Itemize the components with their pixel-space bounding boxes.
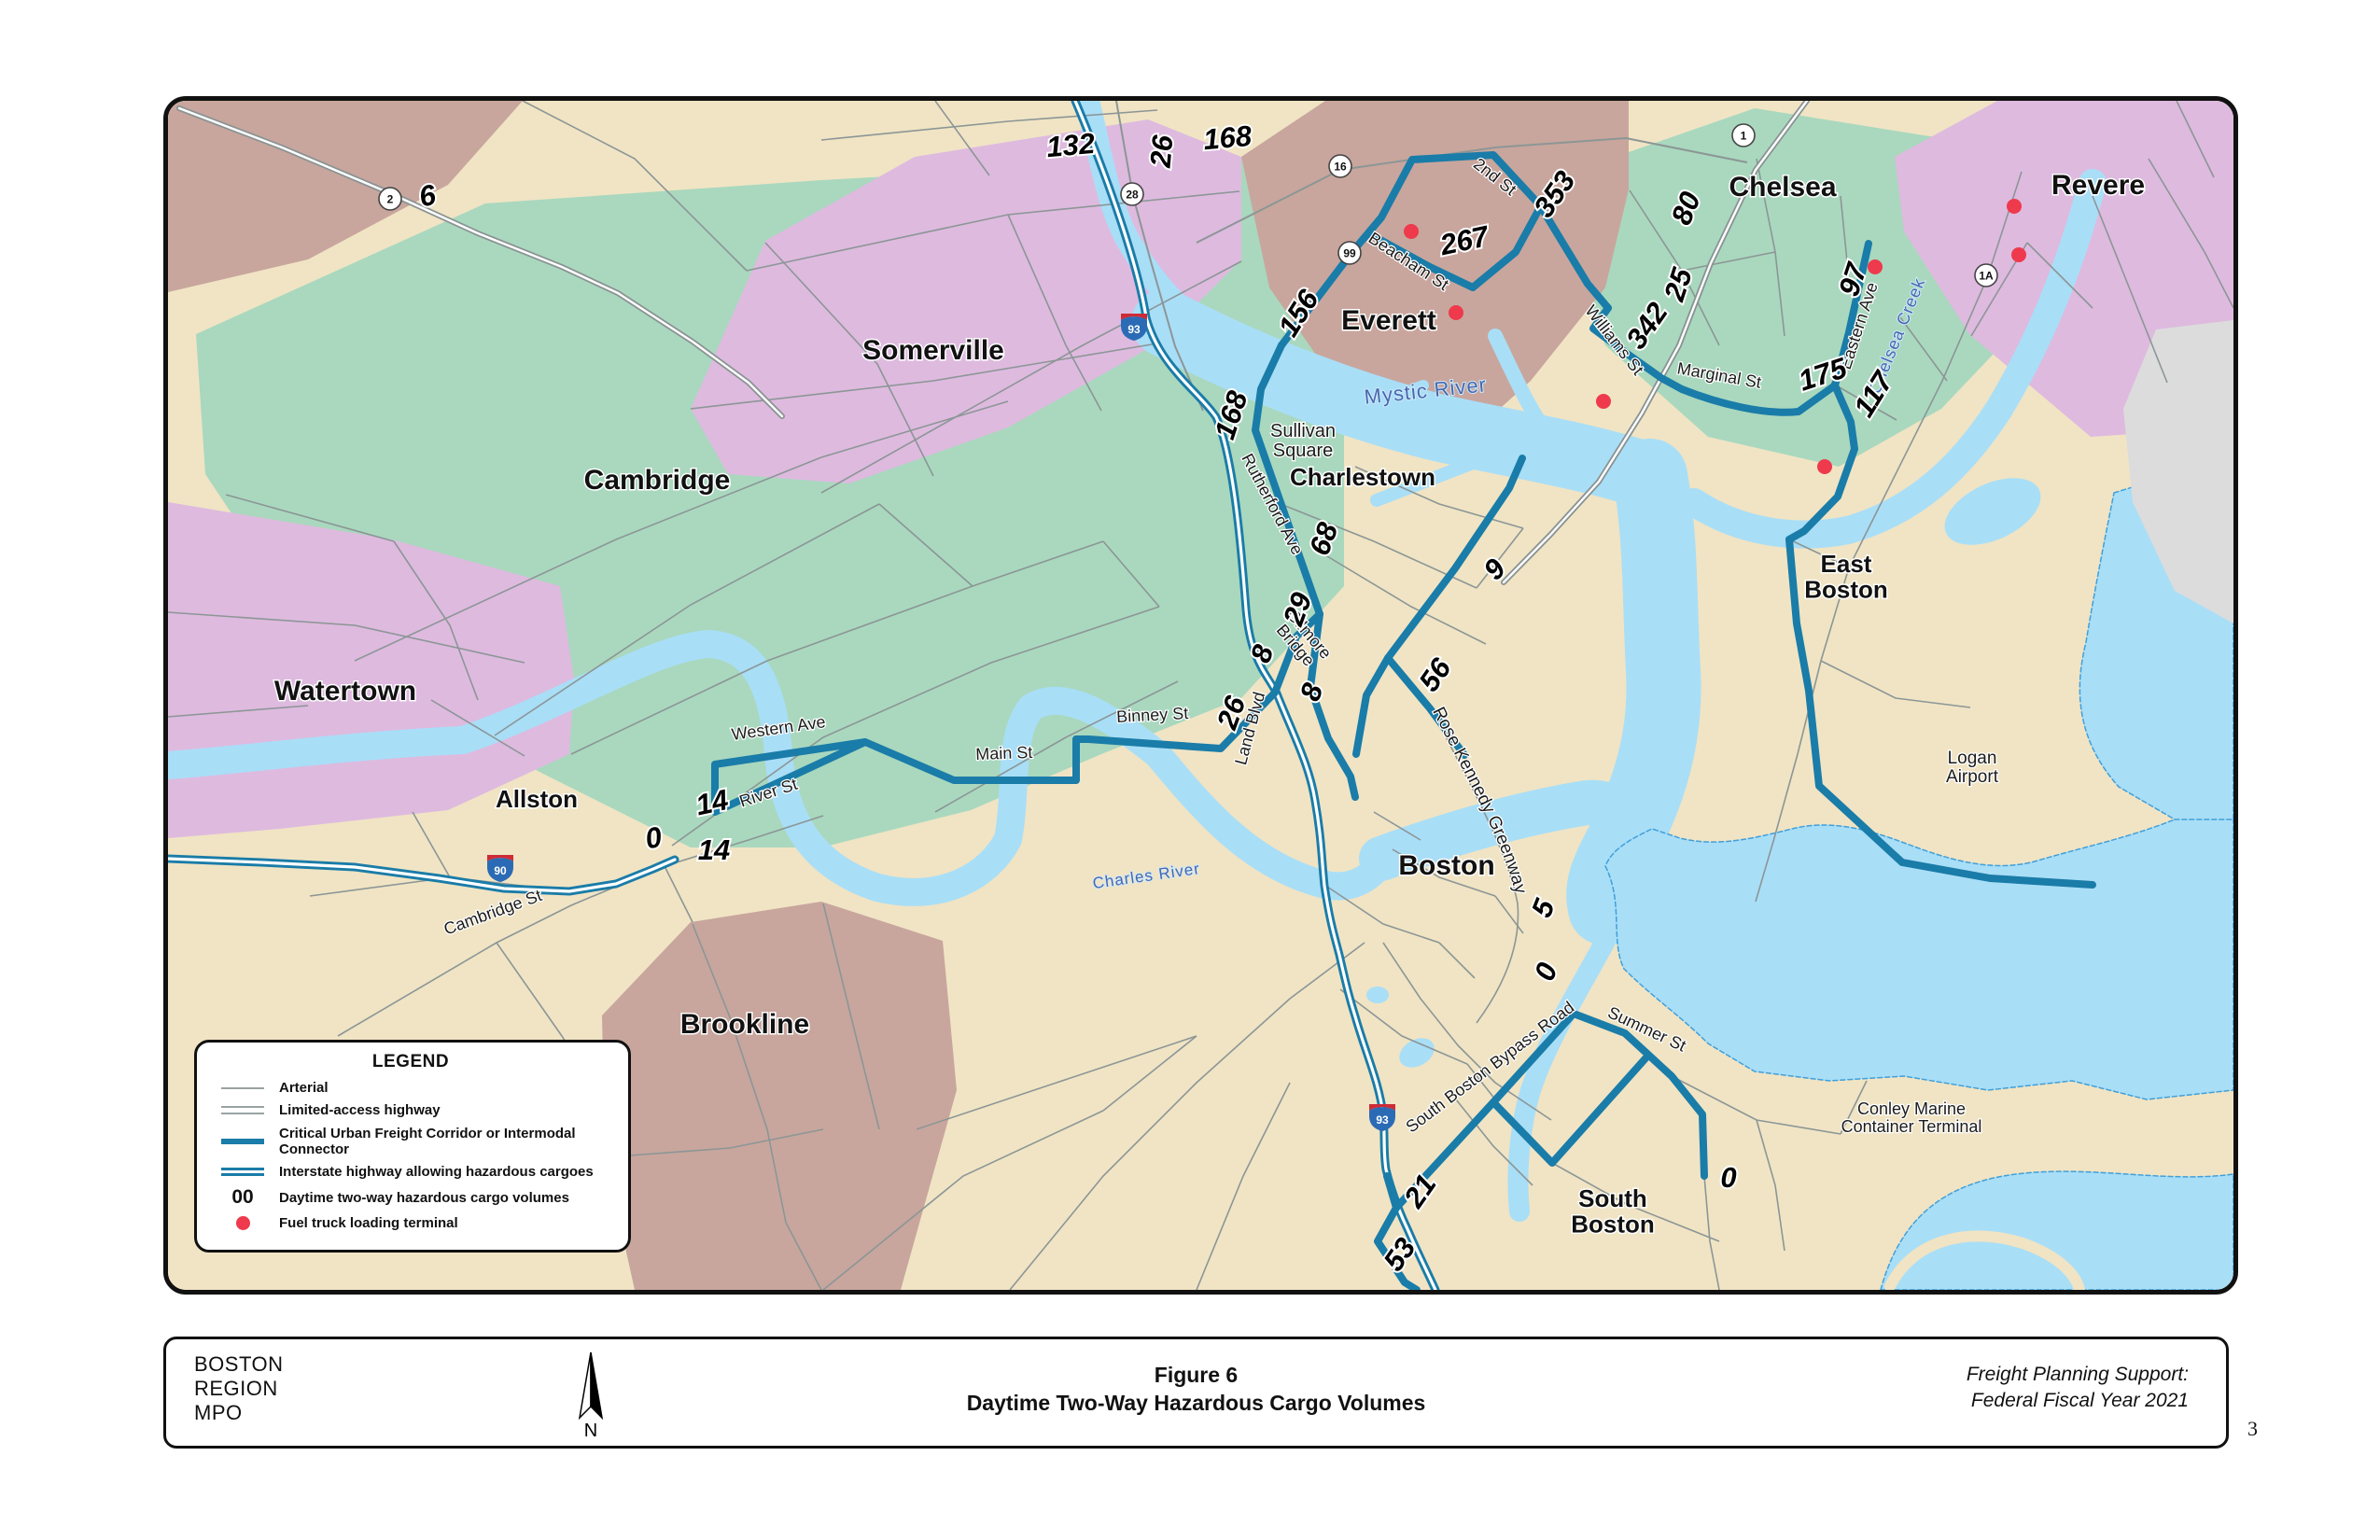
- limited-access-line-symbol: [221, 1106, 264, 1114]
- fuel-terminal-dot: [2011, 247, 2026, 262]
- city-label: Chelsea: [1729, 172, 1836, 203]
- volume-label: 132: [1045, 127, 1097, 163]
- legend-label: Limited-access highway: [279, 1102, 441, 1118]
- legend-label: Fuel truck loading terminal: [279, 1215, 458, 1231]
- freight-corridor-line-symbol: [221, 1139, 264, 1144]
- street-label: Binney St: [1116, 704, 1189, 726]
- volume-label: 14: [698, 833, 730, 866]
- legend-row-volumes: 00 Daytime two-way hazardous cargo volum…: [206, 1186, 615, 1209]
- figure-number: Figure 6: [166, 1362, 2226, 1390]
- city-label: Everett: [1341, 305, 1436, 336]
- volume-label: 14: [693, 783, 731, 821]
- north-label: N: [584, 1421, 597, 1441]
- support-line: Freight Planning Support:: [1967, 1362, 2189, 1388]
- legend: LEGEND Arterial Limited-access highway C…: [194, 1040, 631, 1253]
- street-label: Main St: [975, 743, 1033, 763]
- svg-text:1A: 1A: [1979, 270, 1994, 283]
- support-line: Federal Fiscal Year 2021: [1967, 1388, 2189, 1414]
- legend-row-interstate-hazmat: Interstate highway allowing hazardous ca…: [206, 1164, 615, 1180]
- svg-text:99: 99: [1343, 247, 1356, 260]
- page: Rose Kennedy Greenway 228169911A939093My…: [0, 0, 2380, 1540]
- city-label: SouthBoston: [1571, 1184, 1655, 1238]
- svg-text:93: 93: [1127, 323, 1141, 336]
- fuel-terminal-dot: [1817, 459, 1832, 474]
- svg-text:1: 1: [1741, 130, 1747, 143]
- legend-row-limited-access: Limited-access highway: [206, 1102, 615, 1118]
- city-label: Cambridge: [584, 465, 731, 496]
- volume-label: 26: [1144, 133, 1180, 170]
- city-label: Somerville: [862, 335, 1004, 366]
- place-label: SullivanSquare: [1270, 421, 1336, 461]
- place-label: LoganAirport: [1946, 749, 1999, 787]
- route-shield: 99: [1338, 242, 1361, 264]
- page-number: 3: [2247, 1417, 2258, 1441]
- svg-text:90: 90: [494, 864, 507, 877]
- volume-symbol: 00: [231, 1186, 253, 1209]
- footer-bar: BOSTON REGION MPO N Figure 6 Daytime Two…: [163, 1337, 2229, 1449]
- legend-label: Critical Urban Freight Corridor or Inter…: [279, 1126, 587, 1158]
- svg-text:93: 93: [1376, 1113, 1389, 1127]
- route-shield: 1: [1732, 124, 1755, 147]
- city-label: Revere: [2051, 170, 2145, 201]
- svg-text:2: 2: [387, 193, 394, 206]
- volume-label: 168: [1202, 119, 1253, 156]
- interstate-line-symbol: [221, 1168, 264, 1176]
- volume-label: 0: [1720, 1161, 1736, 1194]
- legend-label: Arterial: [279, 1080, 329, 1096]
- city-label: Boston: [1398, 850, 1494, 881]
- route-shield: 16: [1329, 155, 1351, 177]
- route-shield: 2: [379, 188, 401, 210]
- route-shield: 28: [1121, 183, 1143, 205]
- figure-name: Daytime Two-Way Hazardous Cargo Volumes: [166, 1390, 2226, 1418]
- legend-row-arterial: Arterial: [206, 1080, 615, 1096]
- fuel-terminal-dot: [1404, 224, 1419, 239]
- svg-text:28: 28: [1126, 189, 1139, 202]
- arterial-line-symbol: [221, 1087, 264, 1089]
- region-brookline: [602, 902, 957, 1290]
- route-shield: 1A: [1975, 264, 1997, 287]
- city-label: Charlestown: [1290, 463, 1435, 491]
- fuel-terminal-dot: [1596, 394, 1611, 409]
- figure-title: Figure 6 Daytime Two-Way Hazardous Cargo…: [166, 1362, 2226, 1418]
- map-frame: Rose Kennedy Greenway 228169911A939093My…: [163, 96, 2238, 1295]
- fuel-terminal-dot: [2007, 199, 2022, 214]
- legend-label: Interstate highway allowing hazardous ca…: [279, 1164, 594, 1180]
- svg-text:16: 16: [1334, 161, 1347, 174]
- city-label: Allston: [496, 785, 578, 813]
- place-label: Conley MarineContainer Terminal: [1841, 1099, 1982, 1136]
- water-pond-2: [1366, 987, 1389, 1003]
- fuel-terminal-symbol: [236, 1216, 250, 1230]
- legend-row-freight-corridor: Critical Urban Freight Corridor or Inter…: [206, 1126, 615, 1158]
- legend-title: LEGEND: [206, 1052, 615, 1072]
- fuel-terminal-dot: [1449, 305, 1463, 320]
- legend-row-terminal: Fuel truck loading terminal: [206, 1215, 615, 1231]
- legend-label: Daytime two-way hazardous cargo volumes: [279, 1190, 569, 1206]
- city-label: Brookline: [680, 1009, 809, 1040]
- support-text: Freight Planning Support: Federal Fiscal…: [1967, 1362, 2189, 1415]
- city-label: Watertown: [274, 676, 416, 707]
